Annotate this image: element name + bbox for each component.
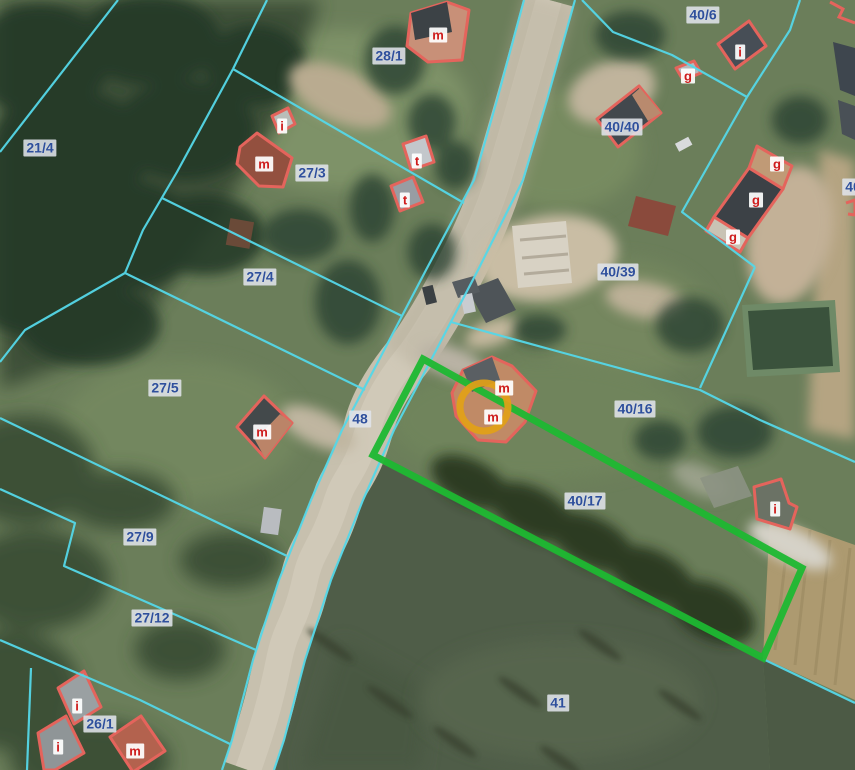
- building-label: i: [735, 45, 745, 60]
- parcel-label: 40/6: [686, 7, 719, 24]
- parcel-label: 27/12: [131, 610, 172, 627]
- building-label: m: [429, 28, 447, 43]
- parcel-label: 21/4: [23, 140, 56, 157]
- building-label: m: [495, 381, 513, 396]
- building-label: m: [484, 410, 502, 425]
- building-label: g: [749, 193, 763, 208]
- building-label: m: [126, 744, 144, 759]
- building-label: t: [400, 193, 410, 208]
- parcel-label: 27/5: [148, 380, 181, 397]
- building-label: i: [53, 740, 63, 755]
- parcel-label: 27/9: [123, 529, 156, 546]
- parcel-label: 48: [349, 411, 371, 428]
- building-label: t: [412, 154, 422, 169]
- map-viewport[interactable]: 21/4 28/1 27/3 27/4 27/5 48 27/9 27/12 2…: [0, 0, 855, 770]
- building-label: i: [770, 502, 780, 517]
- building-label: g: [726, 230, 740, 245]
- building-label: g: [770, 157, 784, 172]
- aerial-photo-canvas: [0, 0, 855, 770]
- parcel-label: 27/3: [295, 165, 328, 182]
- parcel-label: 40/40: [601, 119, 642, 136]
- building-label: m: [253, 425, 271, 440]
- parcel-label: 40/39: [597, 264, 638, 281]
- building-label: i: [72, 699, 82, 714]
- parcel-label: 27/4: [243, 269, 276, 286]
- building-label: g: [681, 69, 695, 84]
- parcel-label: 40/17: [564, 493, 605, 510]
- parcel-label: 40: [842, 179, 855, 196]
- parcel-label: 41: [547, 695, 569, 712]
- parcel-label: 28/1: [372, 48, 405, 65]
- parcel-label: 40/16: [614, 401, 655, 418]
- building-label: i: [277, 119, 287, 134]
- parcel-label: 26/1: [83, 716, 116, 733]
- building-label: m: [255, 157, 273, 172]
